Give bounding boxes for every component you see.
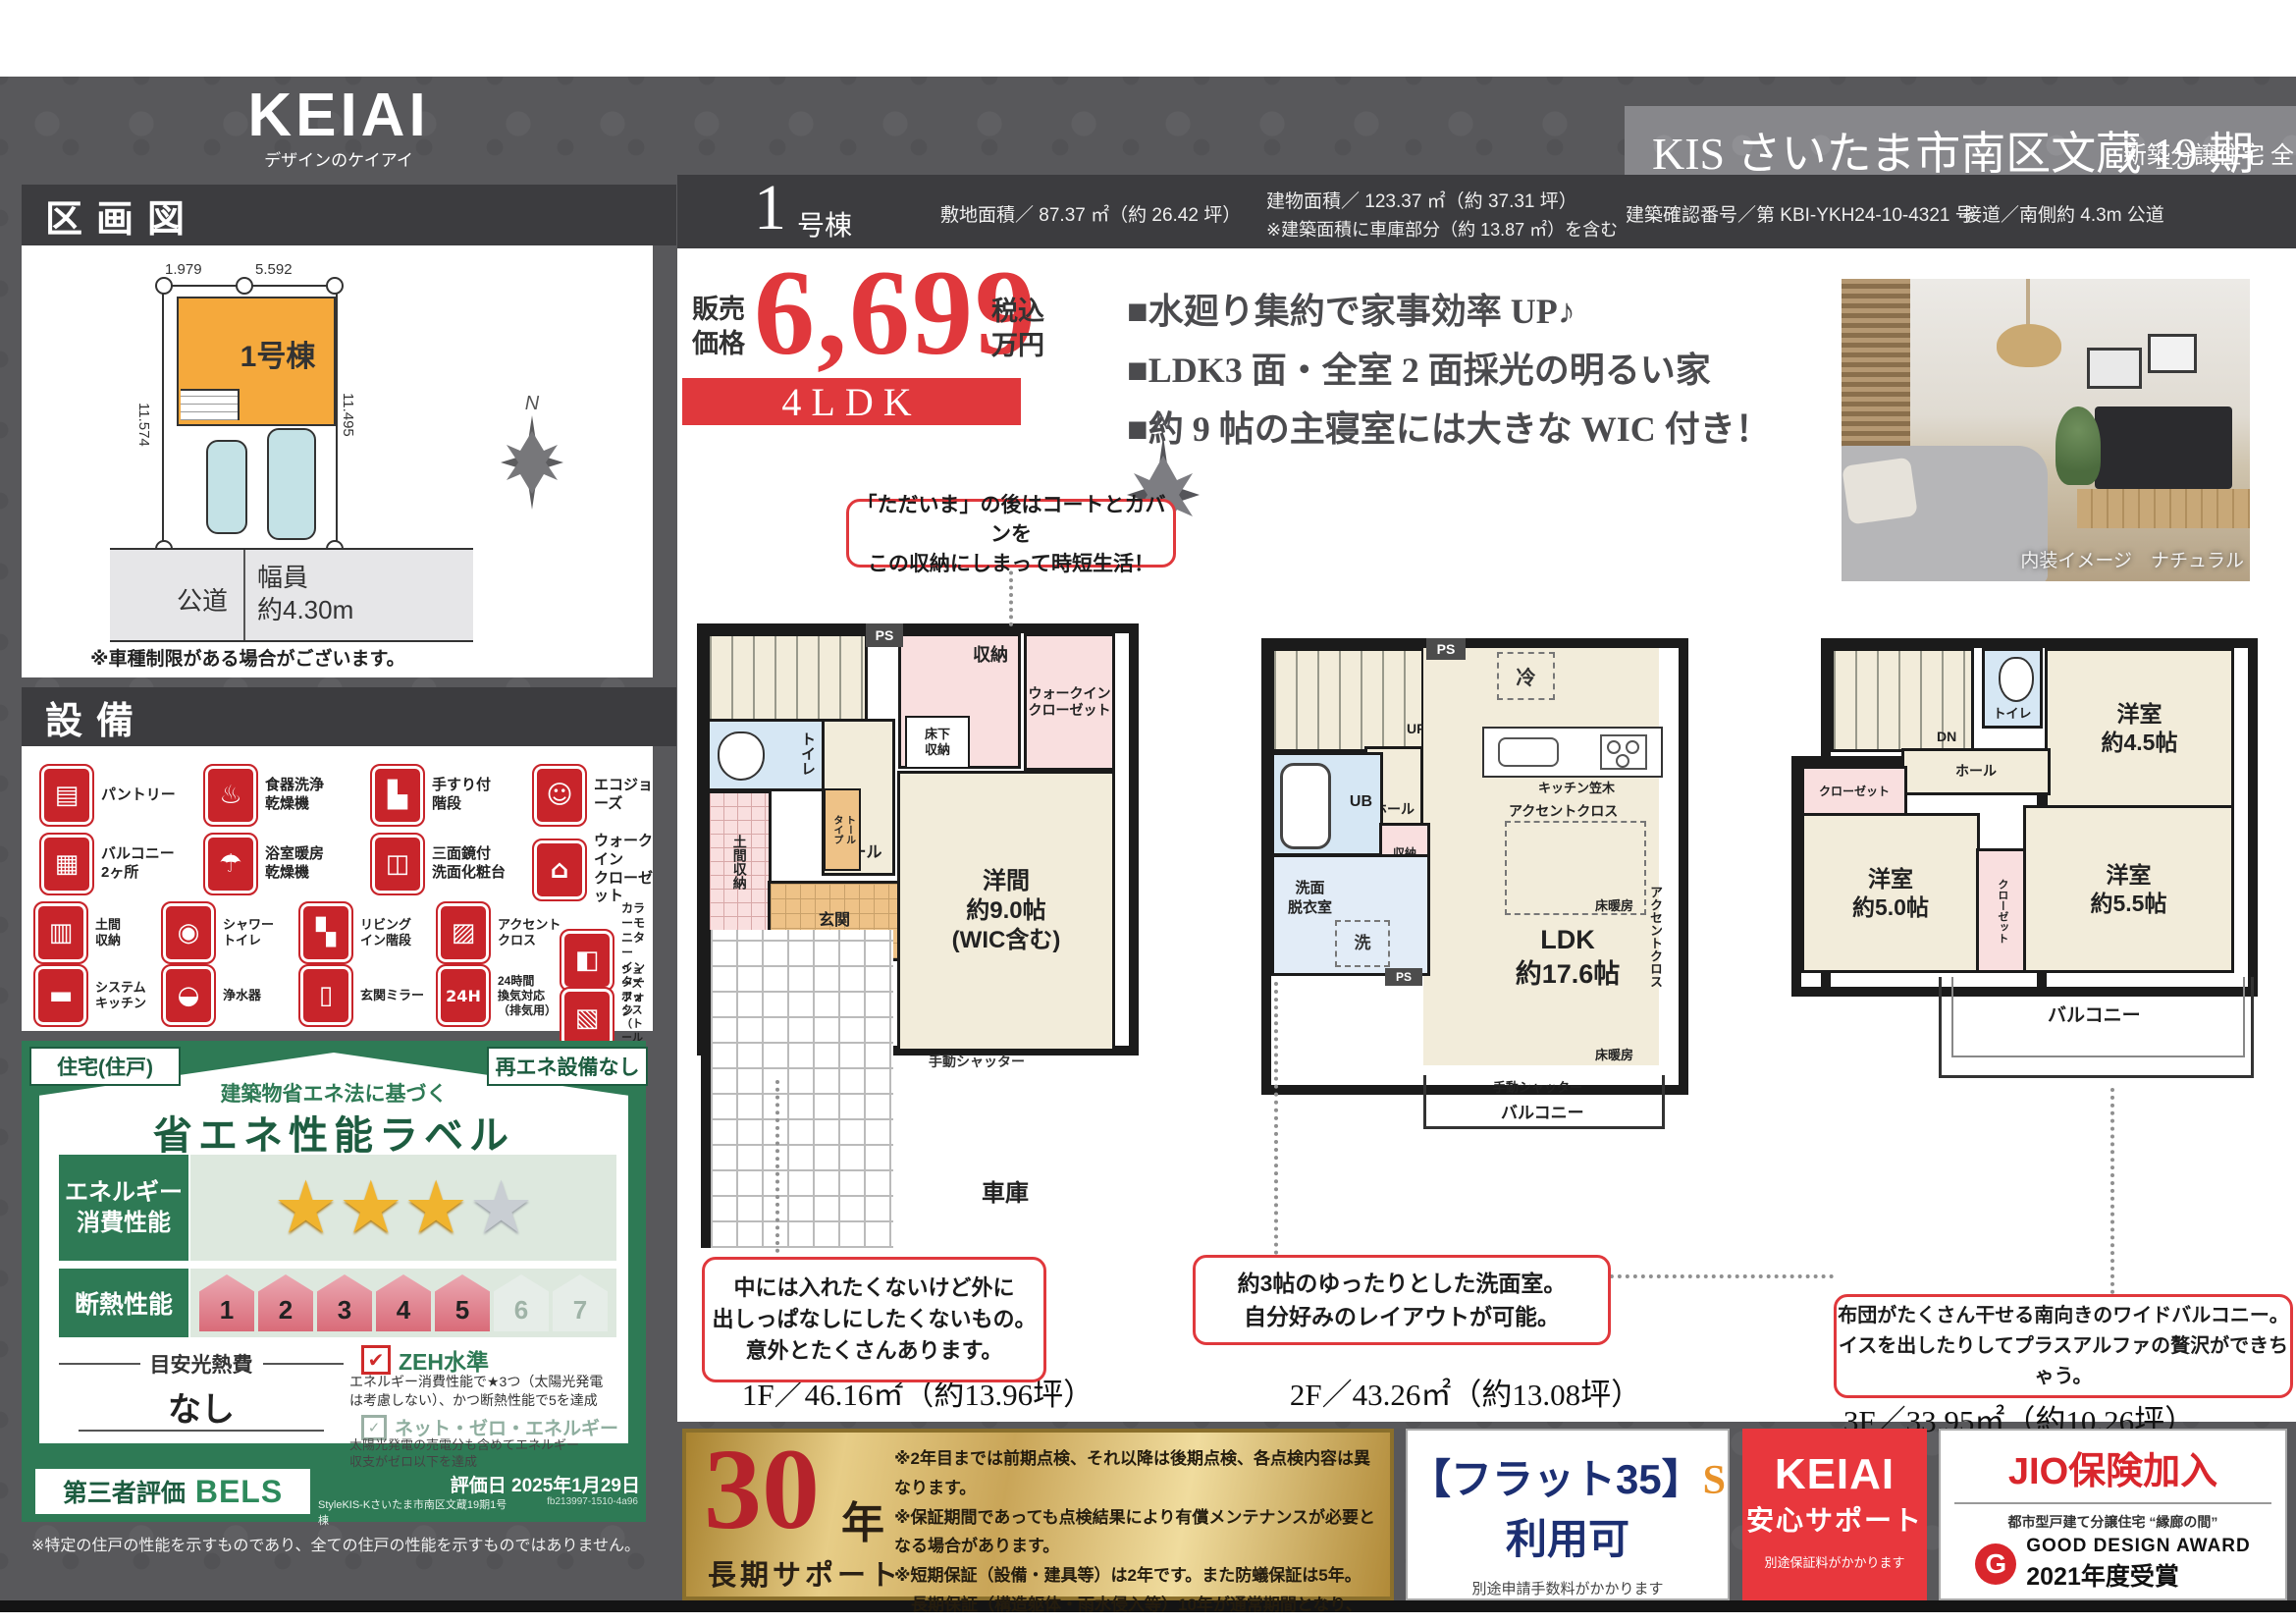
building-footprint: 1号棟 (177, 297, 336, 426)
energy-row-label: エネルギー 消費性能 (59, 1155, 188, 1261)
equip-label: 手すり付 階段 (432, 777, 491, 814)
insulation-level-3: 3 (317, 1274, 372, 1331)
equip-label: シャワー トイレ (223, 917, 274, 949)
brand-tagline: デザインのケイアイ (177, 146, 501, 171)
floor-plan-3f: DN トイレ 洋室 約4.5帖 ホール クローゼット 洋室 約5.0帖 クローゼ… (1791, 638, 2248, 1090)
equip-label: バルコニー 2ヶ所 (101, 845, 175, 883)
callout-1f-doma: 中には入れたくないけど外に 出しっぱなしにしたくないもの。 意外とたくさんありま… (702, 1257, 1046, 1382)
bels-prefix: 第三者評価 (63, 1474, 186, 1509)
photo-frame (2087, 348, 2142, 389)
keiai-support-brand: KEIAI (1742, 1450, 1927, 1499)
support-banner: 30 年 長期サポート ※2年目までは前期点検、それ以降は後期点検、各点検内容は… (682, 1429, 1394, 1600)
flat35-s: S (1703, 1458, 1726, 1503)
insulation-level-6: 6 (494, 1274, 549, 1331)
feature-1: ■水廻り集約で家事効率 UP♪ (1127, 283, 1575, 334)
kitchen-sink (1498, 737, 1559, 767)
room-50: 洋室 約5.0帖 (1801, 813, 1980, 973)
balcony-label-2f: バルコニー (1501, 1099, 1584, 1123)
support-unit: 年 (841, 1488, 884, 1550)
equip-accent-cloth: ▨アクセント クロス (436, 901, 561, 964)
building-area-note: ※建築面積に車庫部分（約 13.87 ㎡）を含む (1266, 216, 1618, 242)
mirror-icon: ▯ (298, 964, 353, 1027)
floor-heating-1: 床暖房 (1595, 895, 1633, 914)
closet-left: クローゼット (1801, 766, 1907, 817)
flyer-page: KIS さいたま市南区文蔵 19 期 新築分譲住宅 全 1 棟 KEIAI デザ… (0, 0, 2296, 1624)
equip-handrail-stairs: ▙手すり付 階段 (370, 764, 491, 827)
jio-title: JIO保険加入 (1941, 1440, 2285, 1494)
star-empty: ★ (468, 1165, 533, 1250)
toilet-label: トイレ (797, 731, 816, 776)
energy-badge-left: 住宅(住戸) (29, 1047, 181, 1086)
divider (59, 1363, 140, 1365)
burner (1607, 740, 1621, 754)
pantry-icon: ▤ (39, 764, 94, 827)
washer-space: 洗 (1335, 920, 1390, 967)
bathtub (1280, 763, 1331, 849)
ub-label: UB (1350, 792, 1372, 812)
support-note-1: ※2年目までは前期点検、それ以降は後期点検、各点検内容は異なります。 (894, 1444, 1385, 1503)
equip-label: アクセント クロス (498, 917, 561, 949)
photo-tv-board (2077, 489, 2250, 528)
equip-entrance-mirror: ▯玄関ミラー (298, 964, 424, 1027)
photo-cushion (1842, 457, 1918, 524)
garage-floor (701, 930, 893, 1248)
equip-label: 玄関ミラー (360, 988, 424, 1003)
dim-dot (155, 277, 173, 295)
equip-label: ウォークイン クローゼット (594, 833, 653, 906)
nze-title: ネット・ゼロ・エネルギー (395, 1414, 618, 1440)
equip-label: リビング イン階段 (360, 917, 411, 949)
water-heater-icon: ☺ (532, 764, 587, 827)
accent-cloth-right-label: アクセントクロス (1646, 886, 1665, 988)
unit-suffix: 号棟 (797, 204, 852, 244)
energy-footnote: ※特定の住戸の性能を示すものであり、全ての住戸の性能を示すものではありません。 (24, 1532, 648, 1555)
price-label: 販売 価格 (692, 293, 745, 361)
road-band: 公道 幅員 約4.30m (110, 548, 473, 642)
plot-map-body: 1号棟 1.979 5.592 11.495 11.574 7.578 公道 幅… (22, 245, 653, 677)
feature-3: ■約 9 帖の主寝室には大きな WIC 付き！ (1127, 401, 1771, 452)
road-arrow (243, 550, 245, 640)
flat35-title: 【フラット35】S (1408, 1446, 1728, 1506)
bels-badge: 第三者評価 BELS (35, 1469, 310, 1514)
support-note-5: それ以降の後期保証の延長には当社が指定する条件を満たす必要があります。 (894, 1620, 1385, 1624)
leader-line (2110, 1088, 2114, 1294)
washroom-label: 洗面 脱衣室 (1288, 879, 1332, 917)
support-note-2: ※保証期間であっても点検結果により有償メンテナンスが必要となる場合があります。 (894, 1503, 1385, 1562)
keiai-support-banner: KEIAI 安心サポート 別途保証料がかかります (1742, 1429, 1927, 1600)
photo-lamp-cord (2026, 279, 2030, 330)
photo-tv (2095, 406, 2232, 489)
insulation-row-label: 断熱性能 (59, 1269, 188, 1337)
flat35-line2: 利用可 (1408, 1506, 1728, 1566)
accent-cloth-top-label: アクセントクロス (1509, 801, 1618, 821)
flat35-note: 別途申請手数料がかかります (1408, 1578, 1728, 1598)
zeh-row: ✔ ZEH水準 (361, 1343, 489, 1377)
equip-label: システム キッチン (95, 980, 146, 1012)
equip-label: 浴室暖房 乾燥機 (265, 845, 324, 883)
zeh-desc: エネルギー消費性能で★3つ（太陽光発電 は考慮しない）、かつ断熱性能で5を達成 (349, 1373, 624, 1410)
gda-subtitle: 都市型戸建て分譲住宅 “縁廊の間” (1941, 1512, 2285, 1532)
equipment-title: 設備 (45, 690, 147, 744)
compass-n-label: N (501, 393, 563, 415)
dim-top-right: 5.592 (255, 261, 293, 278)
kitchen-icon: ▬ (33, 964, 88, 1027)
purifier-icon: ◒ (161, 964, 216, 1027)
room-55: 洋室 約5.5帖 (2023, 805, 2234, 973)
hall-3f: ホール (1901, 748, 2051, 795)
closet-center: クローゼット (1976, 848, 2027, 973)
equip-label: 食器洗浄 乾燥機 (265, 777, 324, 814)
flat35-line1: 【フラット35】 (1410, 1456, 1703, 1502)
compass-icon (501, 415, 563, 510)
callout-2f-washroom: 約3帖のゆったりとした洗面室。 自分好みのレイアウトが可能。 (1193, 1255, 1611, 1345)
flat35-banner: 【フラット35】S 利用可 別途申請手数料がかかります (1406, 1429, 1730, 1600)
eval-date: 評価日 2025年1月29日 (422, 1471, 640, 1497)
equip-label: パントリー (101, 786, 176, 805)
underfloor-storage: 床下 収納 (905, 716, 970, 769)
stairs-icon: ▙ (370, 764, 425, 827)
info-band: 1 号棟 敷地面積／ 87.37 ㎡（約 26.42 坪） 建物面積／ 123.… (677, 175, 2296, 248)
equip-label: 浄水器 (223, 988, 261, 1003)
equip-living-stairs: ▚リビング イン階段 (298, 901, 411, 964)
ps-shaft-bottom: PS (1385, 968, 1422, 986)
price-tax: 税込 万円 (991, 295, 1044, 363)
compass-n-label: N (1127, 408, 1200, 436)
equip-ecojozu: ☺エコジョーズ (532, 764, 653, 827)
stair-mark (181, 389, 240, 420)
brand-logo: KEIAI デザインのケイアイ (177, 81, 501, 171)
cost-value: なし (59, 1382, 344, 1431)
living-stairs-icon: ▚ (298, 901, 353, 964)
shutter-label-1f: 手動シャッター (929, 1052, 1025, 1071)
bels-logo: BELS (195, 1474, 283, 1510)
divider (79, 1430, 324, 1432)
building-area: 建物面積／ 123.37 ㎡（約 37.31 坪） (1266, 187, 1577, 213)
eval-code: fb213997-1510-4a96 (452, 1496, 638, 1507)
insulation-levels: 1 2 3 4 5 6 7 (190, 1269, 616, 1337)
equip-bath-dryer: ☂浴室暖房 乾燥機 (203, 833, 324, 895)
ldk-label: LDK 約17.6帖 (1489, 923, 1646, 992)
toilet-1f: トイレ (707, 719, 825, 791)
jio-banner: JIO保険加入 都市型戸建て分譲住宅 “縁廊の間” G GOOD DESIGN … (1939, 1429, 2287, 1600)
insulation-level-1: 1 (199, 1274, 254, 1331)
divider (263, 1363, 345, 1365)
callout-1f-storage: 「ただいま」の後はコートとカバンを この収納にしまって時短生活！ (846, 499, 1176, 568)
dim-dot (236, 277, 253, 295)
burner (1626, 740, 1639, 754)
floor-heating-2: 床暖房 (1595, 1045, 1633, 1063)
insulation-level-5: 5 (435, 1274, 490, 1331)
car-small (206, 440, 247, 534)
compass-plot: N (501, 393, 563, 514)
unit-bath: UB (1271, 752, 1383, 856)
equip-shower-toilet: ◉シャワー トイレ (161, 901, 274, 964)
plot-unit-label: 1号棟 (224, 332, 332, 375)
keiai-support-label: 安心サポート (1742, 1499, 1927, 1539)
balcony-label-3f: バルコニー (2048, 1001, 2141, 1027)
area-label-2f: 2F／43.26㎡（約13.08坪） (1255, 1370, 1677, 1414)
plot-map-header: 区画図 (22, 185, 676, 245)
equipment-header: 設備 (22, 687, 676, 746)
cost-label: 目安光熱費 (150, 1349, 253, 1379)
fridge-space: 冷 (1497, 652, 1555, 700)
stairs-dn-label: DN (1937, 729, 1956, 744)
floor-plan-2f: UP DN ホール PS 冷 キッチン笠木 アクセントクロス LDK 約17.6… (1261, 638, 1669, 1129)
zeh-checkbox: ✔ (361, 1345, 391, 1375)
closet-icon: ⌂ (532, 839, 587, 901)
equip-dishwasher: ♨食器洗浄 乾燥機 (203, 764, 324, 827)
equip-mirror-vanity: ◫三面鏡付 洗面化粧台 (370, 833, 506, 895)
land-area: 敷地面積／ 87.37 ㎡（約 26.42 坪） (940, 200, 1241, 227)
shutter-label-2f: 手動シャッター (1493, 1077, 1582, 1096)
doma-storage: 土間収納 (707, 790, 772, 934)
support-label: 長期サポート (708, 1552, 902, 1594)
equip-balcony2: ▦バルコニー 2ヶ所 (39, 833, 175, 895)
equip-24h-vent: 24H24時間 換気対応 （排気用） (436, 964, 557, 1027)
equip-label: エコジョーズ (594, 777, 653, 814)
good-design-mark-icon: G (1975, 1543, 2016, 1585)
stars-filled: ★★★ (273, 1165, 468, 1250)
garage-label: 車庫 (982, 1173, 1029, 1208)
nze-row: ✓ ネット・ゼロ・エネルギー (361, 1414, 618, 1440)
energy-badge-right: 再エネ設備なし (487, 1047, 648, 1086)
balcony-icon: ▦ (39, 833, 94, 895)
room-45: 洋室 約4.5帖 (2045, 648, 2234, 809)
ps-shaft-top: PS (1426, 638, 1466, 660)
balcony-3f: バルコニー (1939, 977, 2254, 1078)
equip-wic: ⌂ウォークイン クローゼット (532, 833, 653, 906)
insulation-level-7: 7 (553, 1274, 608, 1331)
stairs-1f (707, 633, 868, 722)
doma-label: 土間収納 (730, 835, 748, 890)
support-note-4: 長期保証（構造躯体・雨水侵入等）10年が通常期間となり、 (894, 1591, 1385, 1620)
cost-row: 目安光熱費 (59, 1349, 344, 1379)
kitchen-kasagi-label: キッチン笠木 (1538, 778, 1615, 796)
photo-plant (2056, 406, 2101, 485)
toilet-fixture (718, 731, 765, 781)
stairs-2f (1271, 648, 1424, 752)
doma-icon: ▥ (33, 901, 88, 964)
photo-pendant-lamp (1997, 324, 2061, 367)
unit-number: 1 (754, 171, 786, 245)
gda-line2: 2021年度受賞 (2026, 1557, 2250, 1593)
plot-note: ※車種制限がある場合がございます。 (90, 644, 601, 671)
balcony-2f: 手動シャッター バルコニー (1423, 1075, 1665, 1129)
brand-logo-text: KEIAI (177, 81, 501, 150)
accent-icon: ▨ (436, 901, 491, 964)
toilet-fixture (1999, 657, 2034, 702)
equip-label: 土間 収納 (95, 917, 121, 949)
equipment-body: ▤パントリー ♨食器洗浄 乾燥機 ▙手すり付 階段 ☺エコジョーズ ▦バルコニー… (22, 746, 653, 1031)
interior-photo: 内装イメージ ナチュラル (1842, 279, 2250, 581)
dim-left: 11.574 (135, 403, 152, 447)
kitchen-counter (1482, 727, 1663, 778)
road-access: 接道／南側約 4.3m 公道 (1963, 200, 2164, 227)
ps-shaft: PS (866, 623, 903, 647)
burner (1616, 754, 1629, 768)
equip-doma: ▥土間 収納 (33, 901, 121, 964)
road-width: 幅員 約4.30m (257, 562, 353, 625)
energy-title: 省エネ性能ラベル (39, 1104, 628, 1161)
car-large (267, 428, 316, 540)
header-band: KIS さいたま市南区文蔵 19 期 新築分譲住宅 全 1 棟 (1625, 106, 2296, 183)
kitchen-stove (1600, 734, 1647, 770)
insulation-level-4: 4 (376, 1274, 431, 1331)
leader-line (1274, 982, 1278, 1255)
nze-checkbox: ✓ (361, 1415, 387, 1440)
leader-line (775, 1080, 779, 1253)
plan-type-bar: 4LDK (682, 378, 1021, 425)
confirmation-number: 建築確認番号／第 KBI-YKH24-10-4321 号 (1626, 200, 1974, 227)
dishwasher-icon: ♨ (203, 764, 258, 827)
zeh-title: ZEH水準 (399, 1343, 489, 1377)
energy-stars-area: ★★★ ★ (190, 1155, 616, 1261)
equip-label: 三面鏡付 洗面化粧台 (432, 845, 506, 883)
insulation-level-2: 2 (258, 1274, 313, 1331)
callout-3f-balcony: 布団がたくさん干せる南向きのワイドバルコニー。 イスを出したりしてプラスアルファ… (1834, 1294, 2293, 1398)
floor-plan-1f: UP PS 収納 床下 収納 ウォークイン クローゼット トイレ ホール トール… (697, 623, 1139, 1252)
equip-pantry: ▤パントリー (39, 764, 176, 827)
dim-dot (326, 277, 344, 295)
gda-line1: GOOD DESIGN AWARD (2026, 1536, 2250, 1557)
toilet-label: トイレ (1993, 706, 2031, 722)
dim-top-left: 1.979 (165, 261, 202, 278)
support-note-3: ※短期保証（設備・建具等）は2年です。また防蟻保証は5年。 (894, 1561, 1385, 1591)
walk-in-closet-1f: ウォークイン クローゼット (1024, 633, 1115, 771)
toilet-3f: トイレ (1982, 648, 2043, 729)
photo-caption: 内装イメージ ナチュラル (1989, 546, 2244, 572)
plot-map-title: 区画図 (45, 189, 198, 243)
closet-center-label: クローゼット (1995, 879, 2008, 944)
washroom: 洗面 脱衣室 洗 (1271, 854, 1430, 976)
feature-2: ■LDK3 面・全室 2 面採光の明るい家 (1127, 342, 1711, 393)
equip-kitchen: ▬システム キッチン (33, 964, 146, 1027)
photo-frame (2148, 334, 2197, 373)
nze-desc: 太陽光発電の売電分も含めてエネルギー 収支がゼロ以下を達成 (349, 1437, 624, 1471)
support-30: 30 (704, 1423, 820, 1556)
vent-icon: 24H (436, 964, 491, 1027)
equip-water-purifier: ◒浄水器 (161, 964, 261, 1027)
bath-dryer-icon: ☂ (203, 833, 258, 895)
dim-right: 11.495 (340, 393, 356, 437)
toilet-icon: ◉ (161, 901, 216, 964)
main-bedroom-1f: 洋間 約9.0帖 (WIC含む) (897, 771, 1115, 1052)
keiai-support-note: 別途保証料がかかります (1742, 1552, 1927, 1571)
road-name: 公道 (177, 581, 228, 618)
tall-shoebox: トール タイプ (824, 788, 861, 871)
vanity-icon: ◫ (370, 833, 425, 895)
equip-label: 24時間 換気対応 （排気用） (498, 974, 557, 1018)
